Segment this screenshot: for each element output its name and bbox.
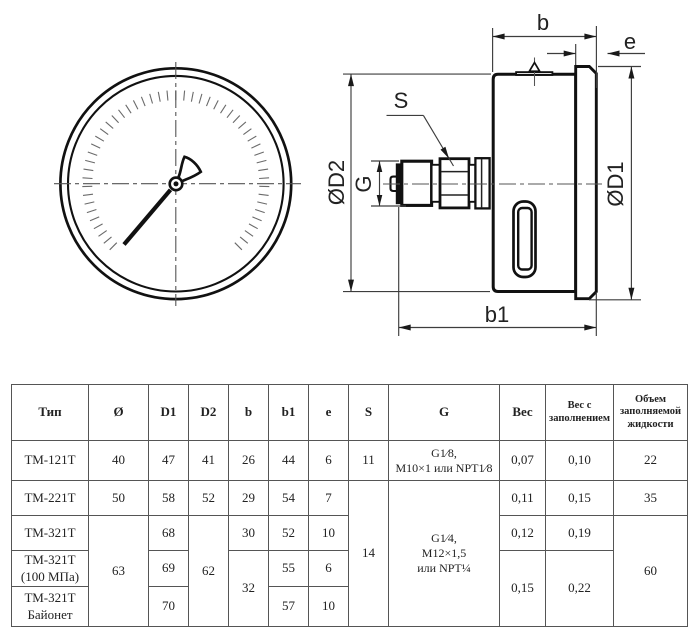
svg-text:G: G [351, 175, 376, 192]
svg-text:ØD2: ØD2 [324, 160, 349, 205]
svg-text:S: S [394, 88, 409, 113]
svg-text:b1: b1 [485, 302, 509, 327]
svg-text:e: e [624, 29, 636, 54]
svg-text:b: b [537, 10, 549, 35]
svg-text:ØD1: ØD1 [603, 161, 628, 206]
